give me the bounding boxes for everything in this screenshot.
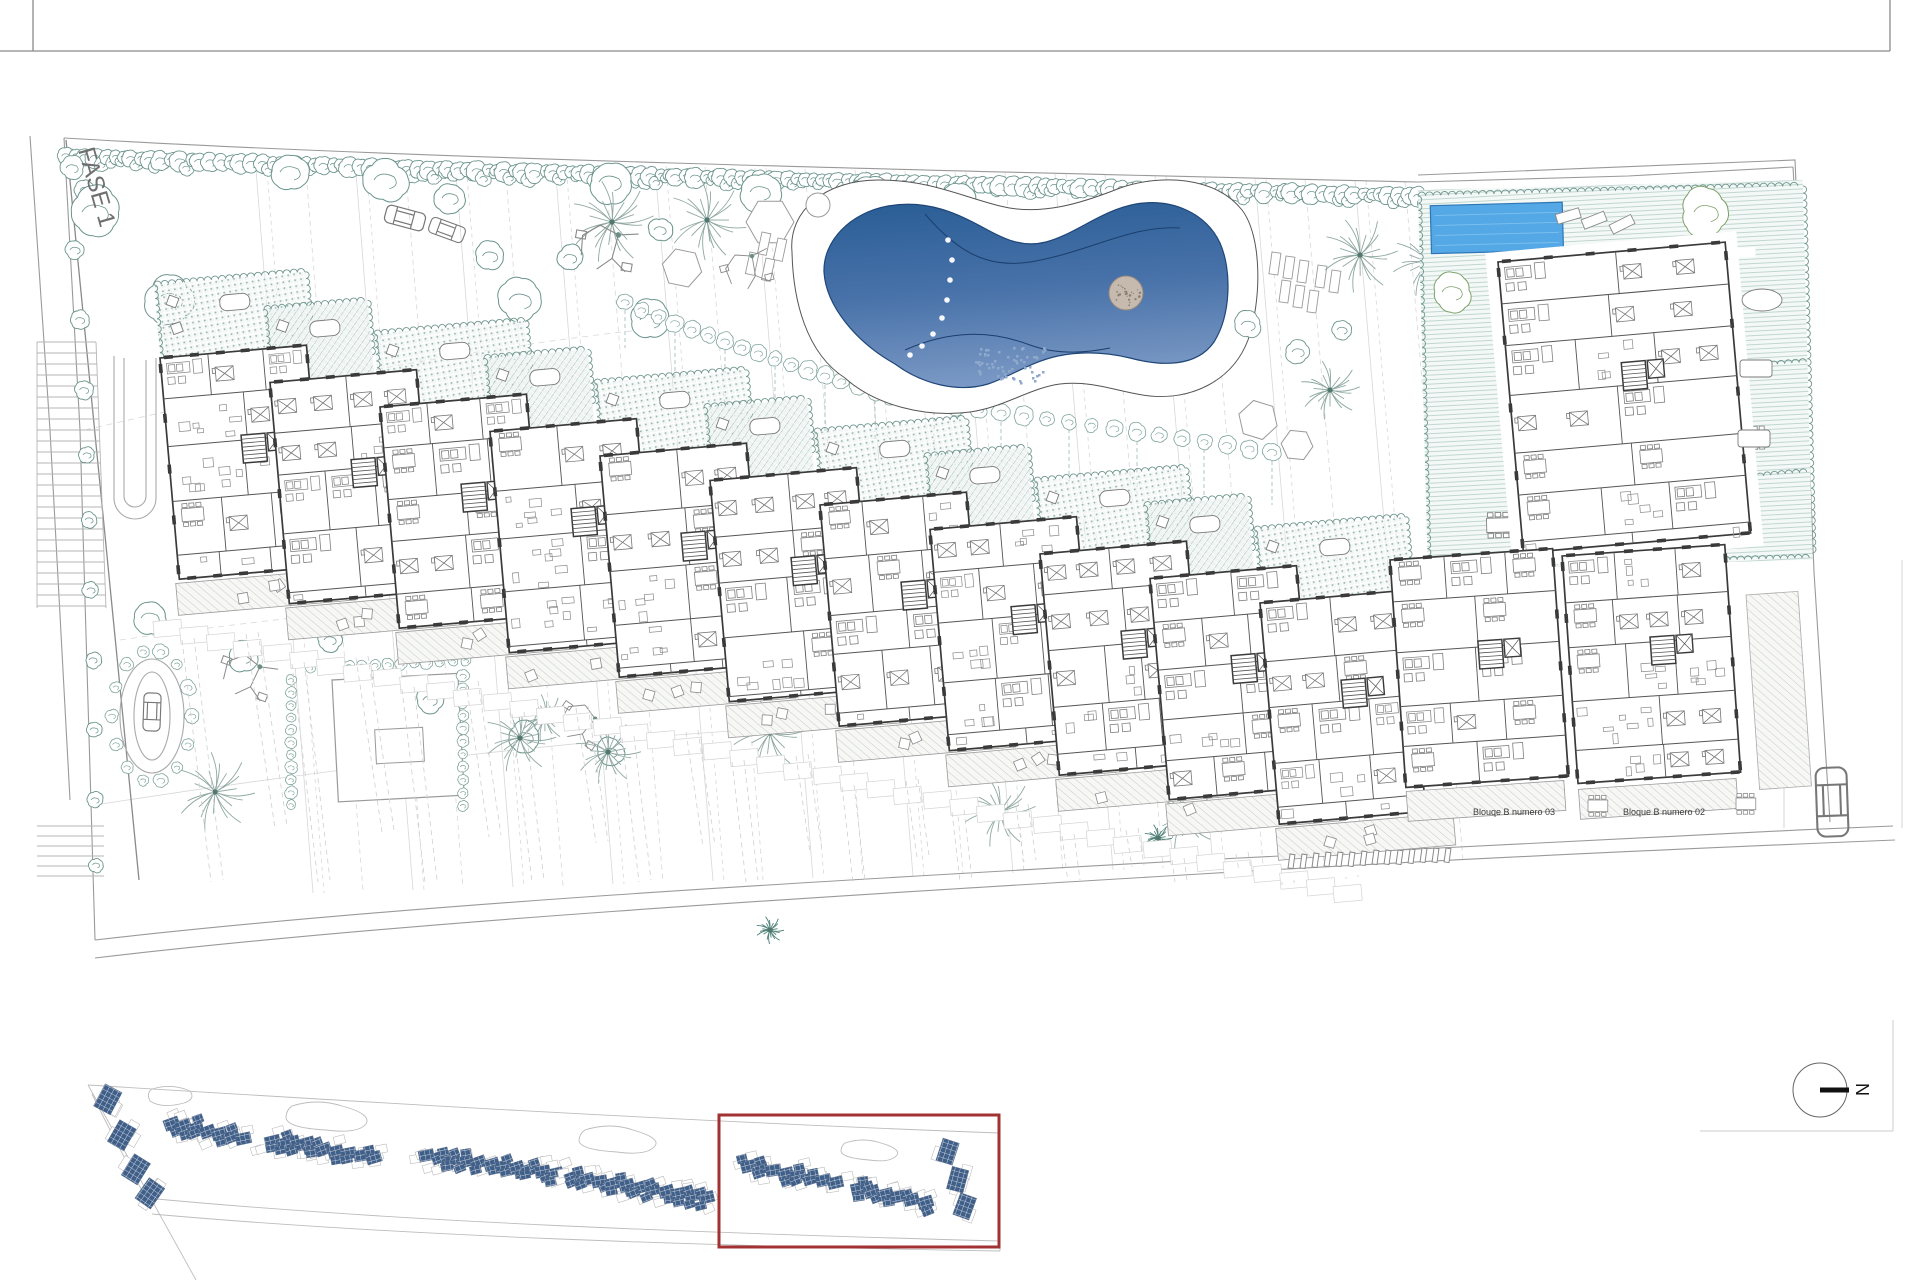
svg-text:Blouqe B numero 03: Blouqe B numero 03 (1473, 807, 1555, 817)
svg-text:N: N (1852, 1083, 1872, 1096)
svg-text:Bloque B numero 02: Bloque B numero 02 (1623, 807, 1705, 817)
